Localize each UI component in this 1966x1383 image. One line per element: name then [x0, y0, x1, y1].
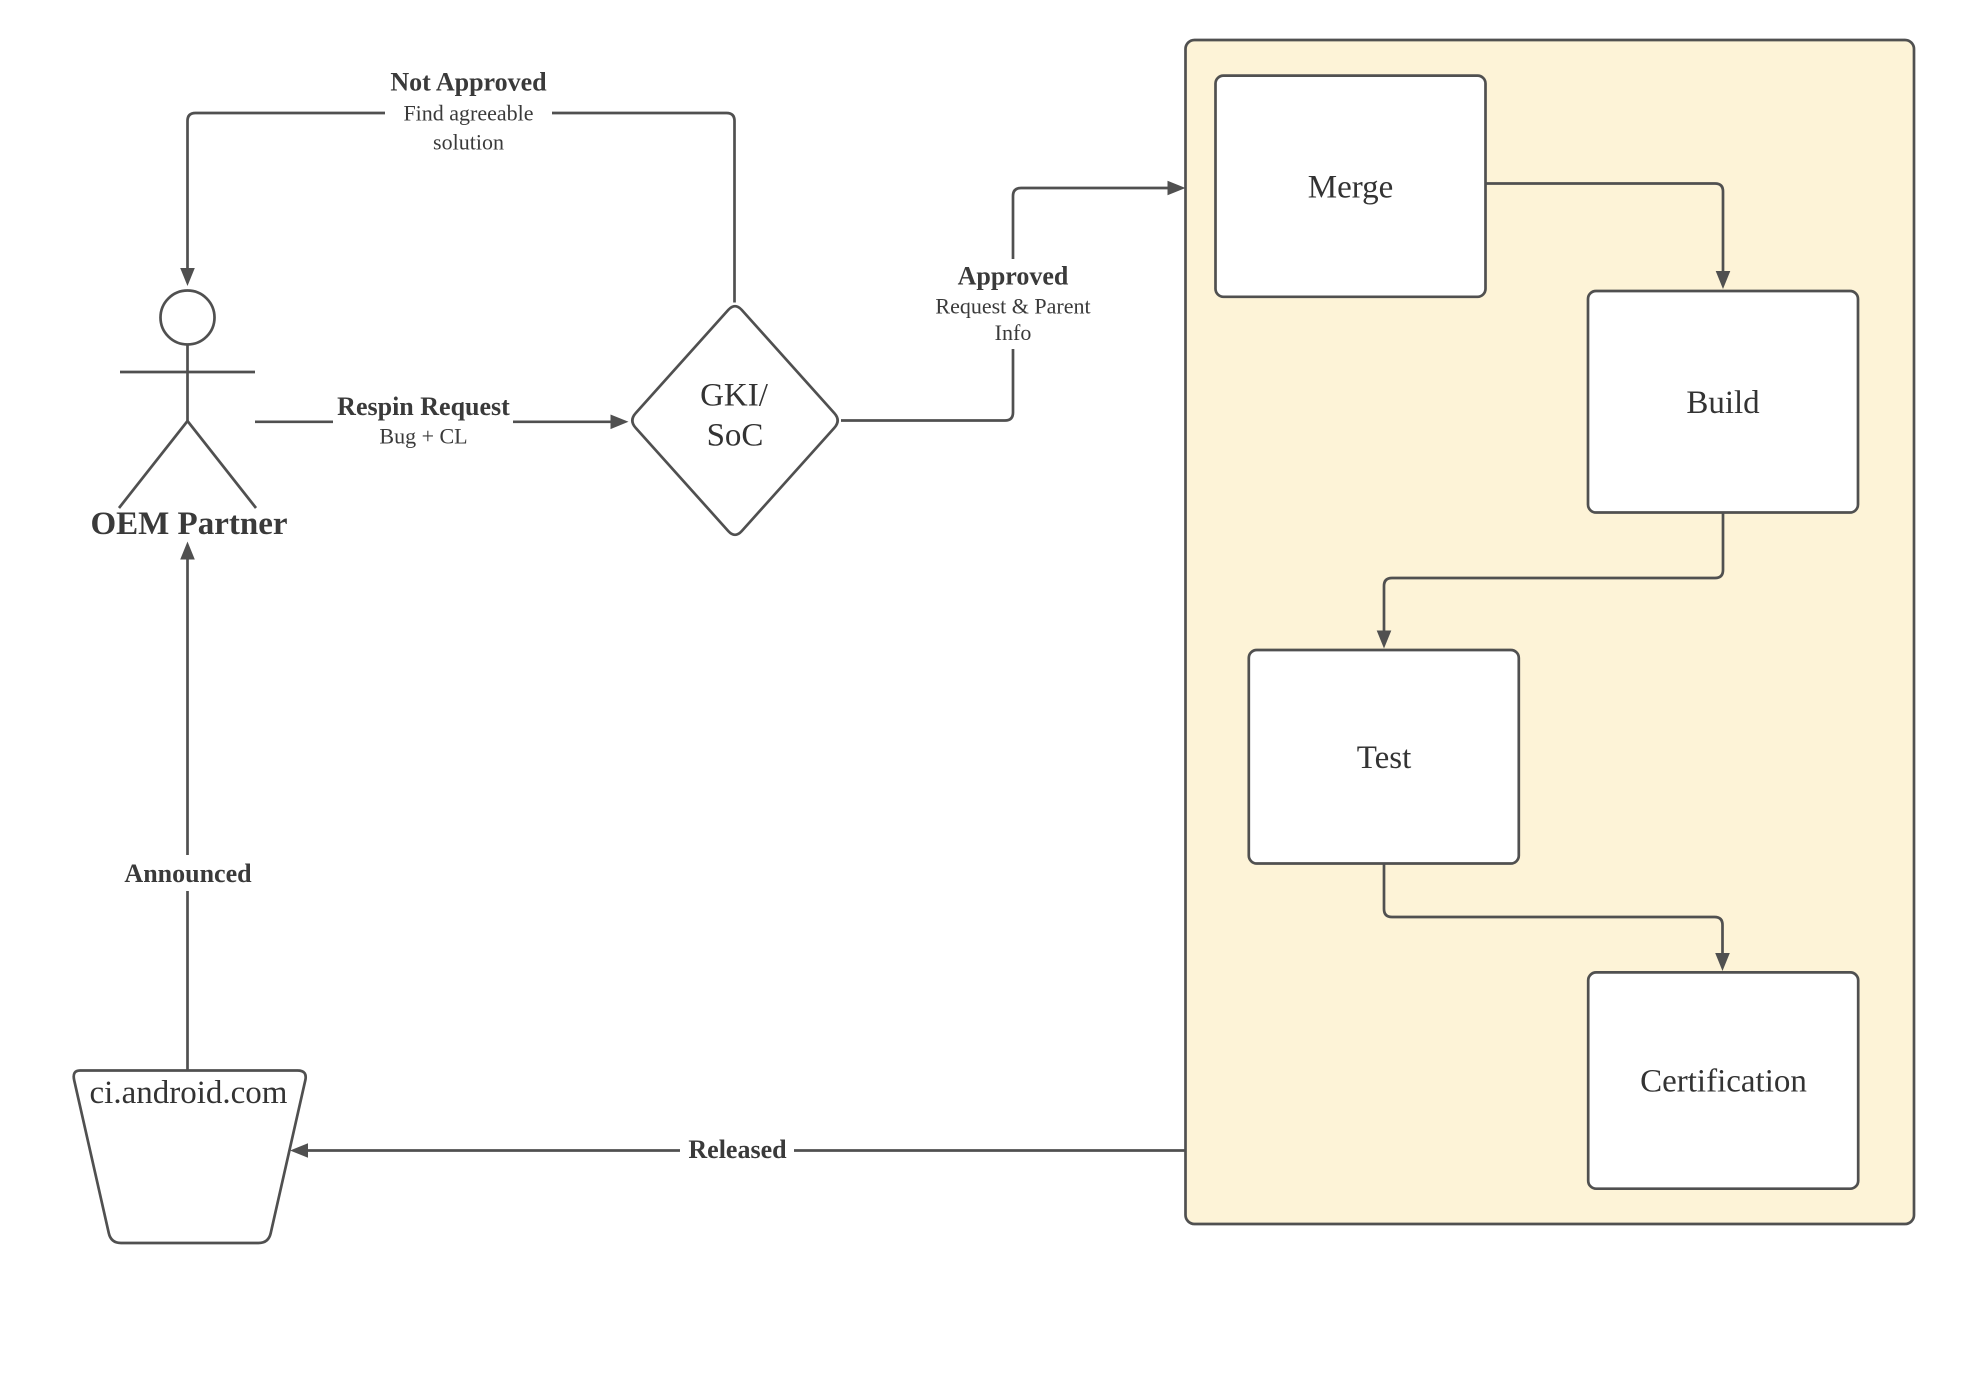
- svg-text:Find agreeable: Find agreeable: [403, 100, 533, 125]
- svg-text:OEM Partner: OEM Partner: [90, 506, 287, 542]
- svg-text:ci.android.com: ci.android.com: [90, 1075, 288, 1111]
- svg-text:GKI/: GKI/: [700, 378, 769, 414]
- svg-text:Request & Parent: Request & Parent: [935, 294, 1090, 319]
- svg-text:Bug + CL: Bug + CL: [379, 423, 467, 448]
- svg-text:Released: Released: [688, 1135, 787, 1164]
- svg-text:Merge: Merge: [1308, 169, 1394, 205]
- svg-text:Info: Info: [995, 320, 1032, 345]
- svg-text:Announced: Announced: [124, 859, 252, 888]
- svg-text:Respin Request: Respin Request: [337, 392, 510, 421]
- svg-text:solution: solution: [433, 130, 504, 155]
- svg-text:Build: Build: [1686, 385, 1760, 421]
- svg-text:Approved: Approved: [958, 261, 1069, 290]
- svg-text:Certification: Certification: [1640, 1064, 1807, 1100]
- svg-text:Test: Test: [1357, 740, 1412, 776]
- svg-text:Not Approved: Not Approved: [390, 68, 547, 97]
- svg-text:SoC: SoC: [707, 418, 764, 454]
